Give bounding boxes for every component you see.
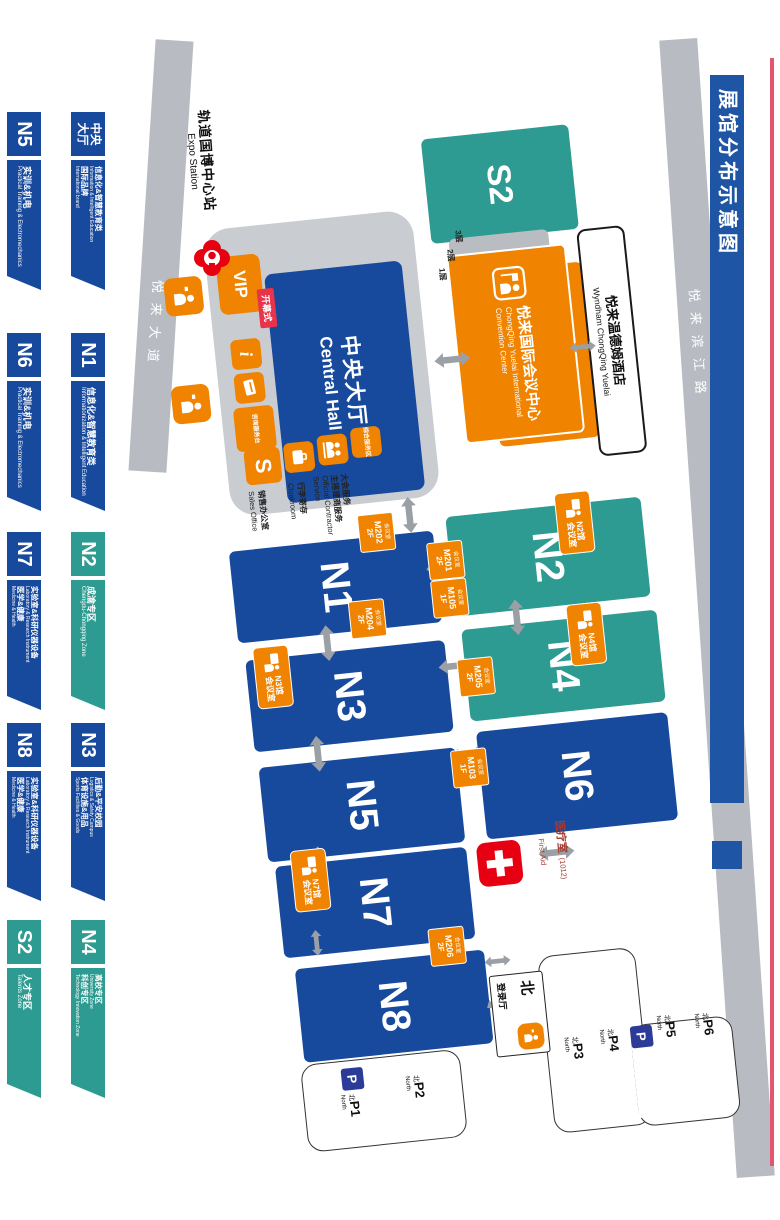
- floor-label-3f: 3层: [452, 230, 464, 244]
- service-area-box: 综合服务区: [350, 426, 383, 459]
- double-arrow-icon: [484, 954, 511, 968]
- hall-n2: N2: [445, 497, 650, 617]
- first-aid-icon: [476, 839, 524, 887]
- legend-badge: N6: [7, 333, 41, 377]
- meeting-room-m204: 会议室M2042F: [348, 598, 388, 640]
- n4-meeting-room-badge: N4馆会议室: [565, 601, 607, 666]
- legend-badge: 中央大厅: [71, 112, 105, 156]
- legend-entry-N6: N6实训&机电Practical Training & Electromecha…: [7, 333, 41, 511]
- page-title-text: 展馆分布示意图: [716, 89, 738, 257]
- legend-badge: N7: [7, 532, 41, 576]
- n2-meeting-room-badge: N2馆会议室: [553, 490, 595, 555]
- meeting-icon: [574, 608, 596, 630]
- double-arrow-icon: [400, 496, 419, 533]
- north-registration-hall: 北 登录厅: [489, 970, 551, 1057]
- floor-label-2f: 2层: [444, 249, 456, 263]
- parking-p3-label: 北P3North: [562, 1035, 586, 1060]
- legend-category: 实训&机电Practical Training & Electromechani…: [7, 160, 41, 290]
- meeting-icon: [298, 854, 320, 876]
- parking-area-south: [300, 1049, 468, 1153]
- legend-category: 信息化&智慧教育类Informationization & Intelligen…: [71, 381, 105, 511]
- legend-badge: N1: [71, 333, 105, 377]
- hall-n6: N6: [476, 712, 678, 839]
- north-char: 北: [516, 979, 538, 996]
- map-canvas: 悦来滨江路 悦来大道 展馆分布示意图 轨道国博中心站 Expo Station …: [0, 0, 780, 1190]
- registration-hall-label: 登录厅: [494, 982, 510, 1010]
- legend-entry-N1: N1信息化&智慧教育类Informationization & Intellig…: [71, 333, 105, 511]
- meeting-room-m105: 会议室M1051F: [430, 577, 470, 619]
- legend-entry-N3: N3后勤&平安校园Logistics & Safety Campus体育设施&用…: [71, 723, 105, 901]
- legend-badge: N4: [71, 920, 105, 964]
- legend-entry-N2: N2成渝专区Chengdu-Chongqing Zone: [71, 532, 105, 710]
- hall-n8: N8: [295, 949, 494, 1062]
- meeting-room-m205: 会议室M2052F: [456, 656, 496, 698]
- parking-p1-label: 北P1North: [339, 1093, 363, 1118]
- title-end-square: [712, 841, 742, 869]
- page-title: 展馆分布示意图: [710, 75, 744, 803]
- hall-s2-label: S2: [479, 162, 521, 206]
- legend-category: 信息化&智慧教育类Information & Intelligent Educa…: [71, 160, 105, 290]
- metro-logo-icon: [192, 238, 232, 278]
- legend-entry-N4: N4高校专区University Zone科创专区Technology Inno…: [71, 920, 105, 1098]
- service-desk-label: 咨询服务台: [250, 413, 260, 444]
- cloakroom-icon: [283, 441, 316, 474]
- convention-center: 悦来国际会议中心 ChongQing Yuelai International …: [446, 243, 585, 445]
- conference-icon: [490, 264, 527, 301]
- legend-badge: S2: [7, 920, 41, 964]
- information-icon: i: [230, 338, 263, 371]
- meeting-room-m202: 会议室M2022F: [357, 512, 397, 554]
- contractor-service-icon: [316, 433, 349, 466]
- hall-n3-label: N3: [324, 668, 374, 724]
- parking-icon: P: [340, 1067, 364, 1091]
- sales-office-icon: S: [243, 446, 283, 486]
- legend-category: 实训&机电Practical Training & Electromechani…: [7, 381, 41, 511]
- entrance-icon: [170, 383, 212, 425]
- n3-meeting-room-badge: N3馆会议室: [252, 644, 294, 709]
- meeting-room-m103: 会议室M1031F: [450, 747, 490, 789]
- sales-s-glyph: S: [249, 457, 276, 474]
- legend-badge: N5: [7, 112, 41, 156]
- legend-entry-S2: S2人才专区Talents Zone: [7, 920, 41, 1098]
- legend-badge: N3: [71, 723, 105, 767]
- entrance-icon: [163, 275, 205, 317]
- parking-p5-label: 北P5North: [655, 1014, 679, 1039]
- parking-p2-label: 北P2North: [404, 1074, 428, 1099]
- meeting-room-m206: 会议室M2062F: [427, 926, 467, 968]
- service-area-label: 综合服务区: [361, 427, 371, 458]
- legend-badge: N8: [7, 723, 41, 767]
- legend-category: 实验室&科研仪器设备Laboratory & Research Instrume…: [7, 771, 41, 901]
- hall-n5-label: N5: [337, 777, 387, 833]
- legend-badge: N2: [71, 532, 105, 576]
- info-i-glyph: i: [235, 350, 256, 357]
- legend-entry-N8: N8实验室&科研仪器设备Laboratory & Research Instru…: [7, 723, 41, 901]
- legend-category: 人才专区Talents Zone: [7, 968, 41, 1098]
- hall-n8-label: N8: [369, 978, 419, 1034]
- legend-entry-N5: N5实训&机电Practical Training & Electromecha…: [7, 112, 41, 290]
- legend-entry-中央大厅: 中央大厅信息化&智慧教育类Information & Intelligent E…: [71, 112, 105, 290]
- parking-p6-label: 北P6North: [693, 1012, 717, 1037]
- legend-category: 后勤&平安校园Logistics & Safety Campus体育设施&用品S…: [71, 771, 105, 901]
- accent-line: [770, 58, 774, 1166]
- hall-s2: S2: [421, 124, 579, 244]
- entrance-icon: [517, 1022, 546, 1051]
- ticketing-icon: [233, 371, 266, 404]
- parking-p4-label: 北P4North: [598, 1028, 622, 1053]
- hall-n7-label: N7: [350, 875, 400, 931]
- service-desk-box: 咨询服务台: [233, 405, 277, 453]
- legend-entry-N7: N7实验室&科研仪器设备Laboratory & Research Instru…: [7, 532, 41, 710]
- legend-category: 实验室&科研仪器设备Laboratory & Research Instrume…: [7, 580, 41, 710]
- meeting-icon: [562, 497, 584, 519]
- meeting-icon: [261, 651, 283, 673]
- meeting-room-m201: 会议室M2012F: [426, 540, 466, 582]
- contractor-service-label: 大会服务 主搭建商服务 Official Contractor Service: [311, 473, 355, 541]
- parking-icon: P: [630, 1024, 654, 1048]
- hall-n5: N5: [259, 747, 466, 862]
- legend-category: 成渝专区Chengdu-Chongqing Zone: [71, 580, 105, 710]
- legend-category: 高校专区University Zone科创专区Technology Innova…: [71, 968, 105, 1098]
- n7-meeting-room-badge: N7馆会议室: [289, 848, 331, 913]
- site-plan: S2 N2 N4 N6 N1 N3 N5 N7 N8 中央大厅 Central …: [0, 0, 780, 1220]
- floor-label-1f: 1层: [436, 268, 448, 282]
